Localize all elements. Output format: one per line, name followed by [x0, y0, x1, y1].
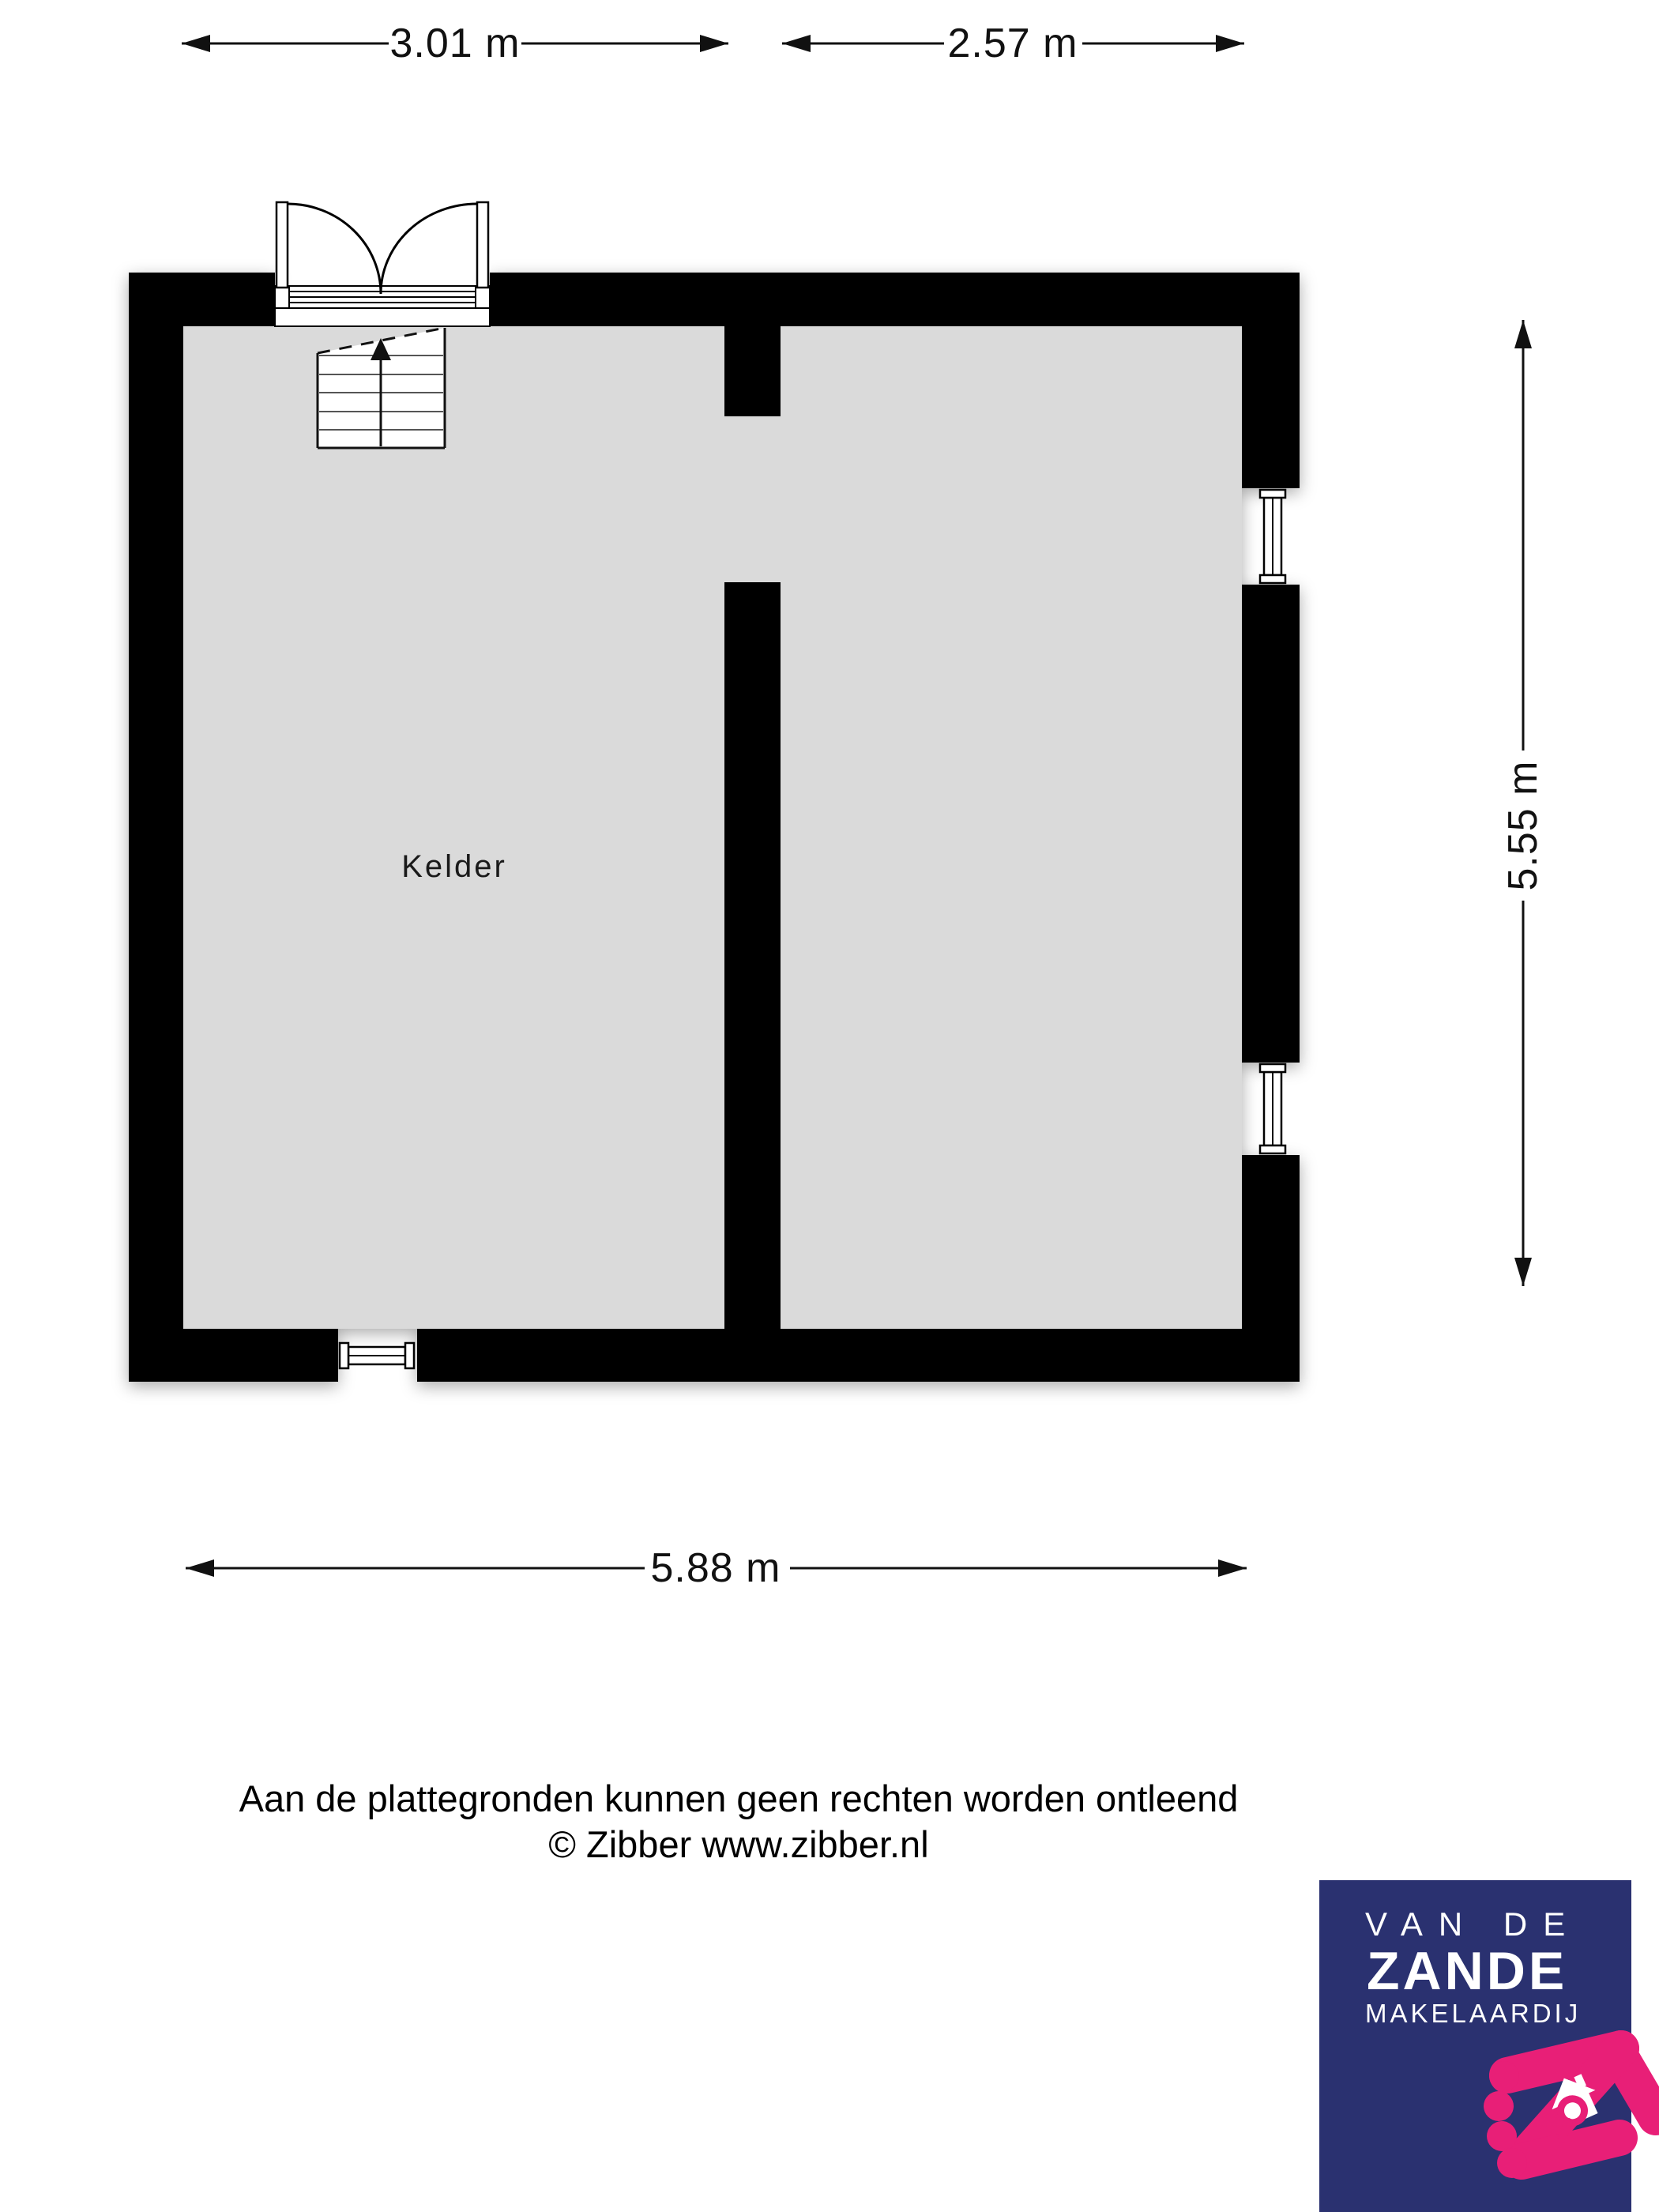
dimension-label-right: 5.55 m	[1500, 761, 1546, 891]
arrowhead-icon	[1514, 1258, 1532, 1286]
door-leaf	[276, 202, 288, 288]
dimension-label-top-left: 3.01 m	[390, 21, 521, 66]
disclaimer-line1: Aan de plattegronden kunnen geen rechten…	[0, 1776, 1477, 1822]
double-door	[275, 202, 490, 326]
arrowhead-icon	[700, 35, 728, 52]
zande-z-icon	[1319, 1880, 1659, 2212]
door-post	[275, 286, 289, 308]
disclaimer: Aan de plattegronden kunnen geen rechten…	[0, 1776, 1477, 1868]
window	[340, 1343, 414, 1368]
arrowhead-icon	[782, 35, 811, 52]
arrowhead-icon	[1514, 320, 1532, 348]
plan-structure	[129, 273, 1300, 1382]
window	[1260, 490, 1285, 583]
arrowhead-icon	[1216, 35, 1244, 52]
arrowhead-icon	[182, 35, 210, 52]
arrowhead-icon	[186, 1559, 214, 1577]
floor	[183, 326, 1242, 1329]
disclaimer-line2: © Zibber www.zibber.nl	[0, 1822, 1477, 1868]
divider-wall-stub	[724, 326, 781, 416]
dimension-label-bottom: 5.88 m	[651, 1545, 781, 1591]
arrowhead-icon	[1218, 1559, 1247, 1577]
door-swing-arc	[288, 204, 381, 294]
divider-wall	[724, 582, 781, 1329]
agency-logo: VAN DE ZANDE MAKELAARDIJ	[1319, 1880, 1659, 2212]
room-label: Kelder	[401, 849, 507, 884]
door-post	[476, 286, 490, 308]
dimension-label-top-right: 2.57 m	[948, 21, 1078, 66]
door-leaf	[477, 202, 488, 288]
door-swing-arc	[381, 204, 477, 294]
window	[1260, 1064, 1285, 1153]
